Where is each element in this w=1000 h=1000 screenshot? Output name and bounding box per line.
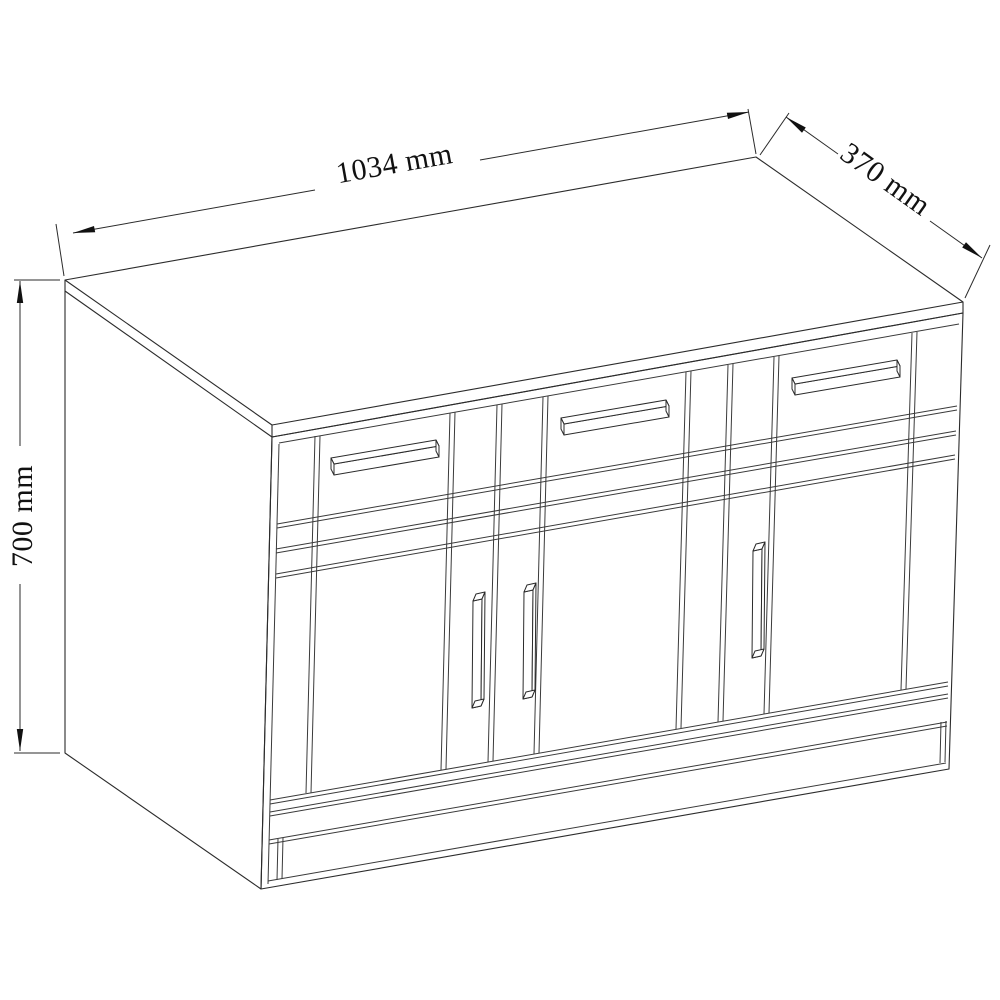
dimension-label-height: 700 mm: [6, 465, 39, 567]
drawer-handle-right: [792, 360, 900, 395]
dimension-arrow: [962, 242, 982, 258]
door-handle-right: [752, 542, 765, 658]
dimension-arrow: [73, 226, 95, 233]
top-panel: [65, 157, 963, 437]
dimension-label-width: 1034 mm: [334, 137, 456, 190]
dimension-arrow: [786, 117, 806, 133]
cabinet-body: [65, 157, 963, 889]
dimension-label-depth: 370 mm: [834, 136, 936, 222]
drawer-handle-middle: [561, 400, 669, 435]
door-handle-middle: [523, 583, 536, 699]
canvas: 1034 mm 370 mm 700 mm: [0, 0, 1000, 1000]
drawer-handle-left: [331, 440, 439, 475]
dimension-arrow: [727, 112, 749, 119]
cabinet-technical-drawing: 1034 mm 370 mm 700 mm: [0, 0, 1000, 1000]
dimension-arrow: [17, 281, 23, 303]
dimension-width: 1034 mm: [56, 109, 756, 276]
front-panel: [261, 313, 963, 889]
dimension-depth: 370 mm: [760, 113, 990, 298]
dimension-arrow: [17, 729, 23, 751]
dimension-height: 700 mm: [6, 280, 60, 753]
side-panel: [65, 291, 279, 889]
door-handle-left: [472, 592, 485, 708]
